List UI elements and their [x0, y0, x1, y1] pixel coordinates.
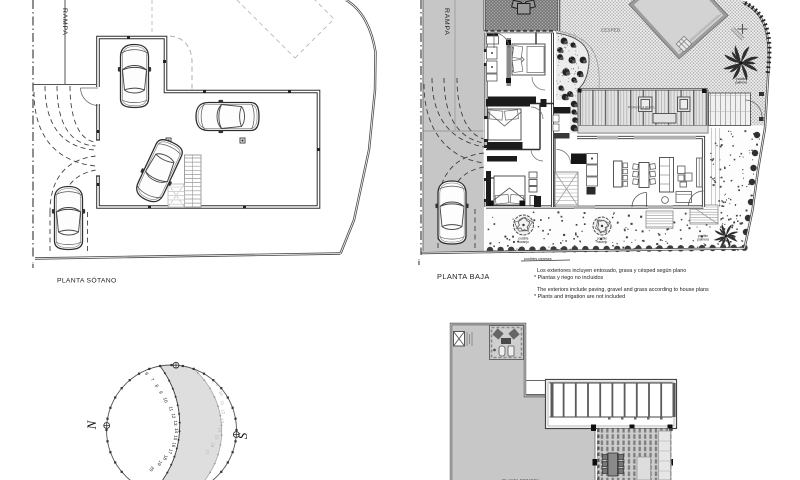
- svg-text:13: 13: [219, 418, 225, 424]
- svg-text:S: S: [235, 432, 250, 439]
- svg-text:11: 11: [219, 400, 225, 406]
- svg-text:12: 12: [171, 413, 177, 419]
- svg-text:RAMPA: RAMPA: [443, 8, 450, 36]
- svg-text:palmera: palmera: [735, 81, 747, 85]
- svg-text:11: 11: [168, 406, 174, 412]
- svg-text:17: 17: [167, 448, 173, 455]
- svg-text:6: 6: [144, 371, 150, 376]
- svg-text:PLANTA BAJA: PLANTA BAJA: [437, 272, 490, 281]
- svg-text:palmera: palmera: [697, 238, 709, 242]
- svg-text:19: 19: [156, 460, 163, 467]
- svg-text:7: 7: [149, 377, 155, 382]
- svg-text:PERGOLA BIOCL: PERGOLA BIOCL: [628, 106, 655, 110]
- svg-text:16: 16: [171, 442, 177, 448]
- svg-text:20: 20: [148, 465, 155, 472]
- svg-text:13: 13: [173, 420, 178, 426]
- svg-text:* Plantas y riego no incluidos: * Plantas y riego no incluidos: [534, 275, 604, 281]
- svg-text:The exteriors include paving,: The exteriors include paving, gravel and…: [537, 287, 709, 293]
- svg-text:RAMPA: RAMPA: [61, 8, 68, 36]
- svg-text:9: 9: [215, 382, 221, 387]
- svg-text:9: 9: [158, 390, 164, 395]
- svg-text:i: i: [32, 263, 34, 270]
- svg-text:naranjo: naranjo: [597, 240, 608, 244]
- svg-text:10: 10: [162, 397, 168, 404]
- svg-text:8: 8: [154, 383, 160, 388]
- svg-text:14: 14: [217, 427, 222, 433]
- svg-text:i: i: [418, 260, 420, 267]
- svg-text:PLANTA SÓTANO: PLANTA SÓTANO: [57, 276, 117, 285]
- svg-text:10: 10: [218, 390, 225, 397]
- svg-text:CESPED: CESPED: [601, 28, 620, 33]
- svg-text:N: N: [84, 419, 99, 430]
- svg-text:12: 12: [220, 409, 226, 415]
- svg-text:15: 15: [173, 435, 179, 441]
- svg-text:14: 14: [174, 428, 179, 434]
- svg-text:naranjo: naranjo: [518, 240, 529, 244]
- svg-text:18: 18: [162, 454, 169, 461]
- svg-text:Los exteriores incluyen entosa: Los exteriores incluyen entosado, grava …: [537, 268, 686, 274]
- svg-text:* Plants and irrigation are no: * Plants and irrigation are not included: [534, 294, 625, 300]
